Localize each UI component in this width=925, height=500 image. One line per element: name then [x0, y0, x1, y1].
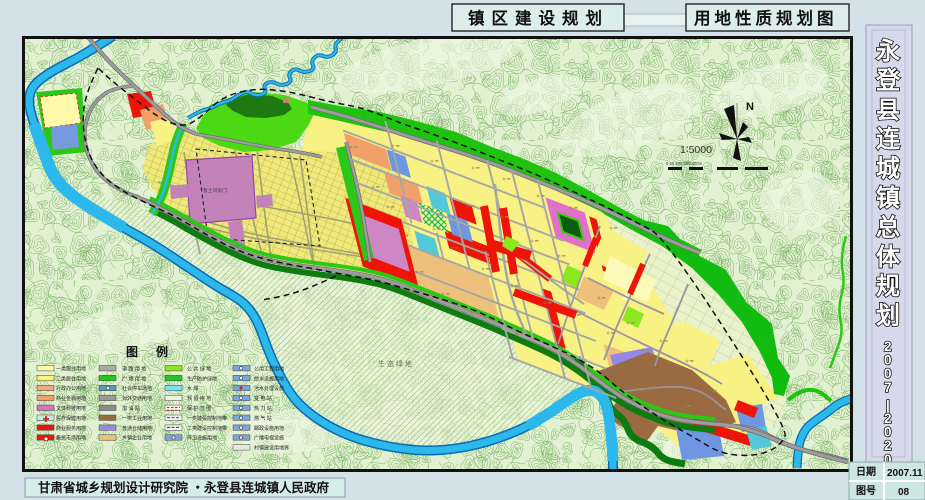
svg-text:热 力 站: 热 力 站: [254, 405, 272, 412]
svg-text:一类工业用地: 一类工业用地: [122, 415, 152, 422]
svg-text:文体科技用地: 文体科技用地: [56, 405, 86, 412]
svg-text:图例: 图例: [126, 344, 186, 359]
svg-text:公 共 绿 地: 公 共 绿 地: [187, 365, 211, 372]
svg-text:给水设施用地: 给水设施用地: [254, 375, 284, 382]
svg-text:规: 规: [876, 273, 900, 300]
svg-text:行政办公用地: 行政办公用地: [56, 385, 86, 392]
svg-text:连: 连: [876, 125, 901, 153]
svg-text:乡镇企业用地: 乡镇企业用地: [122, 435, 152, 442]
svg-text:广播电视设施: 广播电视设施: [254, 435, 284, 442]
svg-text:社会停车场地: 社会停车场地: [122, 385, 152, 392]
svg-text:污水处理设施: 污水处理设施: [254, 385, 284, 392]
svg-text:总: 总: [876, 213, 900, 241]
svg-text:邮政设施用地: 邮政设施用地: [254, 425, 284, 432]
svg-text:集贸市场用地: 集贸市场用地: [56, 435, 86, 442]
svg-text:道 路 用 地: 道 路 用 地: [122, 365, 146, 372]
svg-text:鲁土司衙门: 鲁土司衙门: [203, 187, 227, 194]
svg-text:广 场 用 地: 广 场 用 地: [122, 375, 146, 382]
svg-text:商业金融用地: 商业金融用地: [56, 395, 86, 402]
svg-text:预 留 用 地: 预 留 用 地: [187, 395, 211, 402]
svg-text:燃 气 站: 燃 气 站: [254, 415, 272, 422]
svg-text:用地性质规划图: 用地性质规划图: [694, 8, 838, 28]
svg-text:7: 7: [884, 380, 892, 395]
svg-text:水 域: 水 域: [187, 385, 198, 392]
svg-text:划: 划: [876, 303, 900, 330]
svg-text:环卫设施用地: 环卫设施用地: [187, 435, 217, 442]
svg-text:村镇建设用地界: 村镇建设用地界: [254, 445, 289, 452]
svg-text:医疗保健用地: 医疗保健用地: [56, 415, 86, 422]
svg-text:对外交通用地: 对外交通用地: [122, 395, 152, 402]
svg-text:镇区建设规划: 镇区建设规划: [468, 8, 609, 28]
svg-text:城: 城: [876, 155, 900, 183]
svg-text:二类建设控制地带: 二类建设控制地带: [187, 425, 227, 432]
svg-text:生产防护绿地: 生产防护绿地: [187, 375, 217, 382]
svg-text:加 油 站: 加 油 站: [122, 405, 140, 412]
svg-text:商业服务用地: 商业服务用地: [56, 425, 86, 432]
svg-text:08: 08: [898, 487, 910, 498]
svg-text:普通仓储用地: 普通仓储用地: [122, 425, 152, 432]
svg-text:生 态 绿 地: 生 态 绿 地: [378, 359, 412, 368]
svg-text:登: 登: [875, 67, 901, 94]
svg-text:一类建设控制地带: 一类建设控制地带: [187, 415, 227, 422]
svg-text:2007.11: 2007.11: [887, 468, 923, 479]
svg-text:一类居住用地: 一类居住用地: [56, 365, 86, 372]
svg-text:N: N: [746, 101, 754, 113]
svg-text:日期: 日期: [856, 465, 876, 478]
svg-text:二类居住用地: 二类居住用地: [56, 375, 86, 382]
svg-text:0 50 100 200: 0 50 100 200 400m: [666, 161, 703, 166]
svg-text:永: 永: [876, 38, 900, 65]
svg-text:保 护 范 围: 保 护 范 围: [187, 405, 211, 412]
svg-text:1∶5000: 1∶5000: [680, 144, 712, 156]
svg-text:镇: 镇: [876, 185, 900, 212]
svg-text:县: 县: [876, 97, 900, 124]
svg-text:变 电 站: 变 电 站: [254, 395, 272, 402]
svg-text:甘肃省城乡规划设计研究院 ・永登县连城镇人民政府: 甘肃省城乡规划设计研究院 ・永登县连城镇人民政府: [38, 480, 329, 495]
svg-text:体: 体: [876, 244, 901, 271]
svg-text:图号: 图号: [856, 485, 876, 497]
svg-text:公用工程用地: 公用工程用地: [254, 365, 284, 372]
